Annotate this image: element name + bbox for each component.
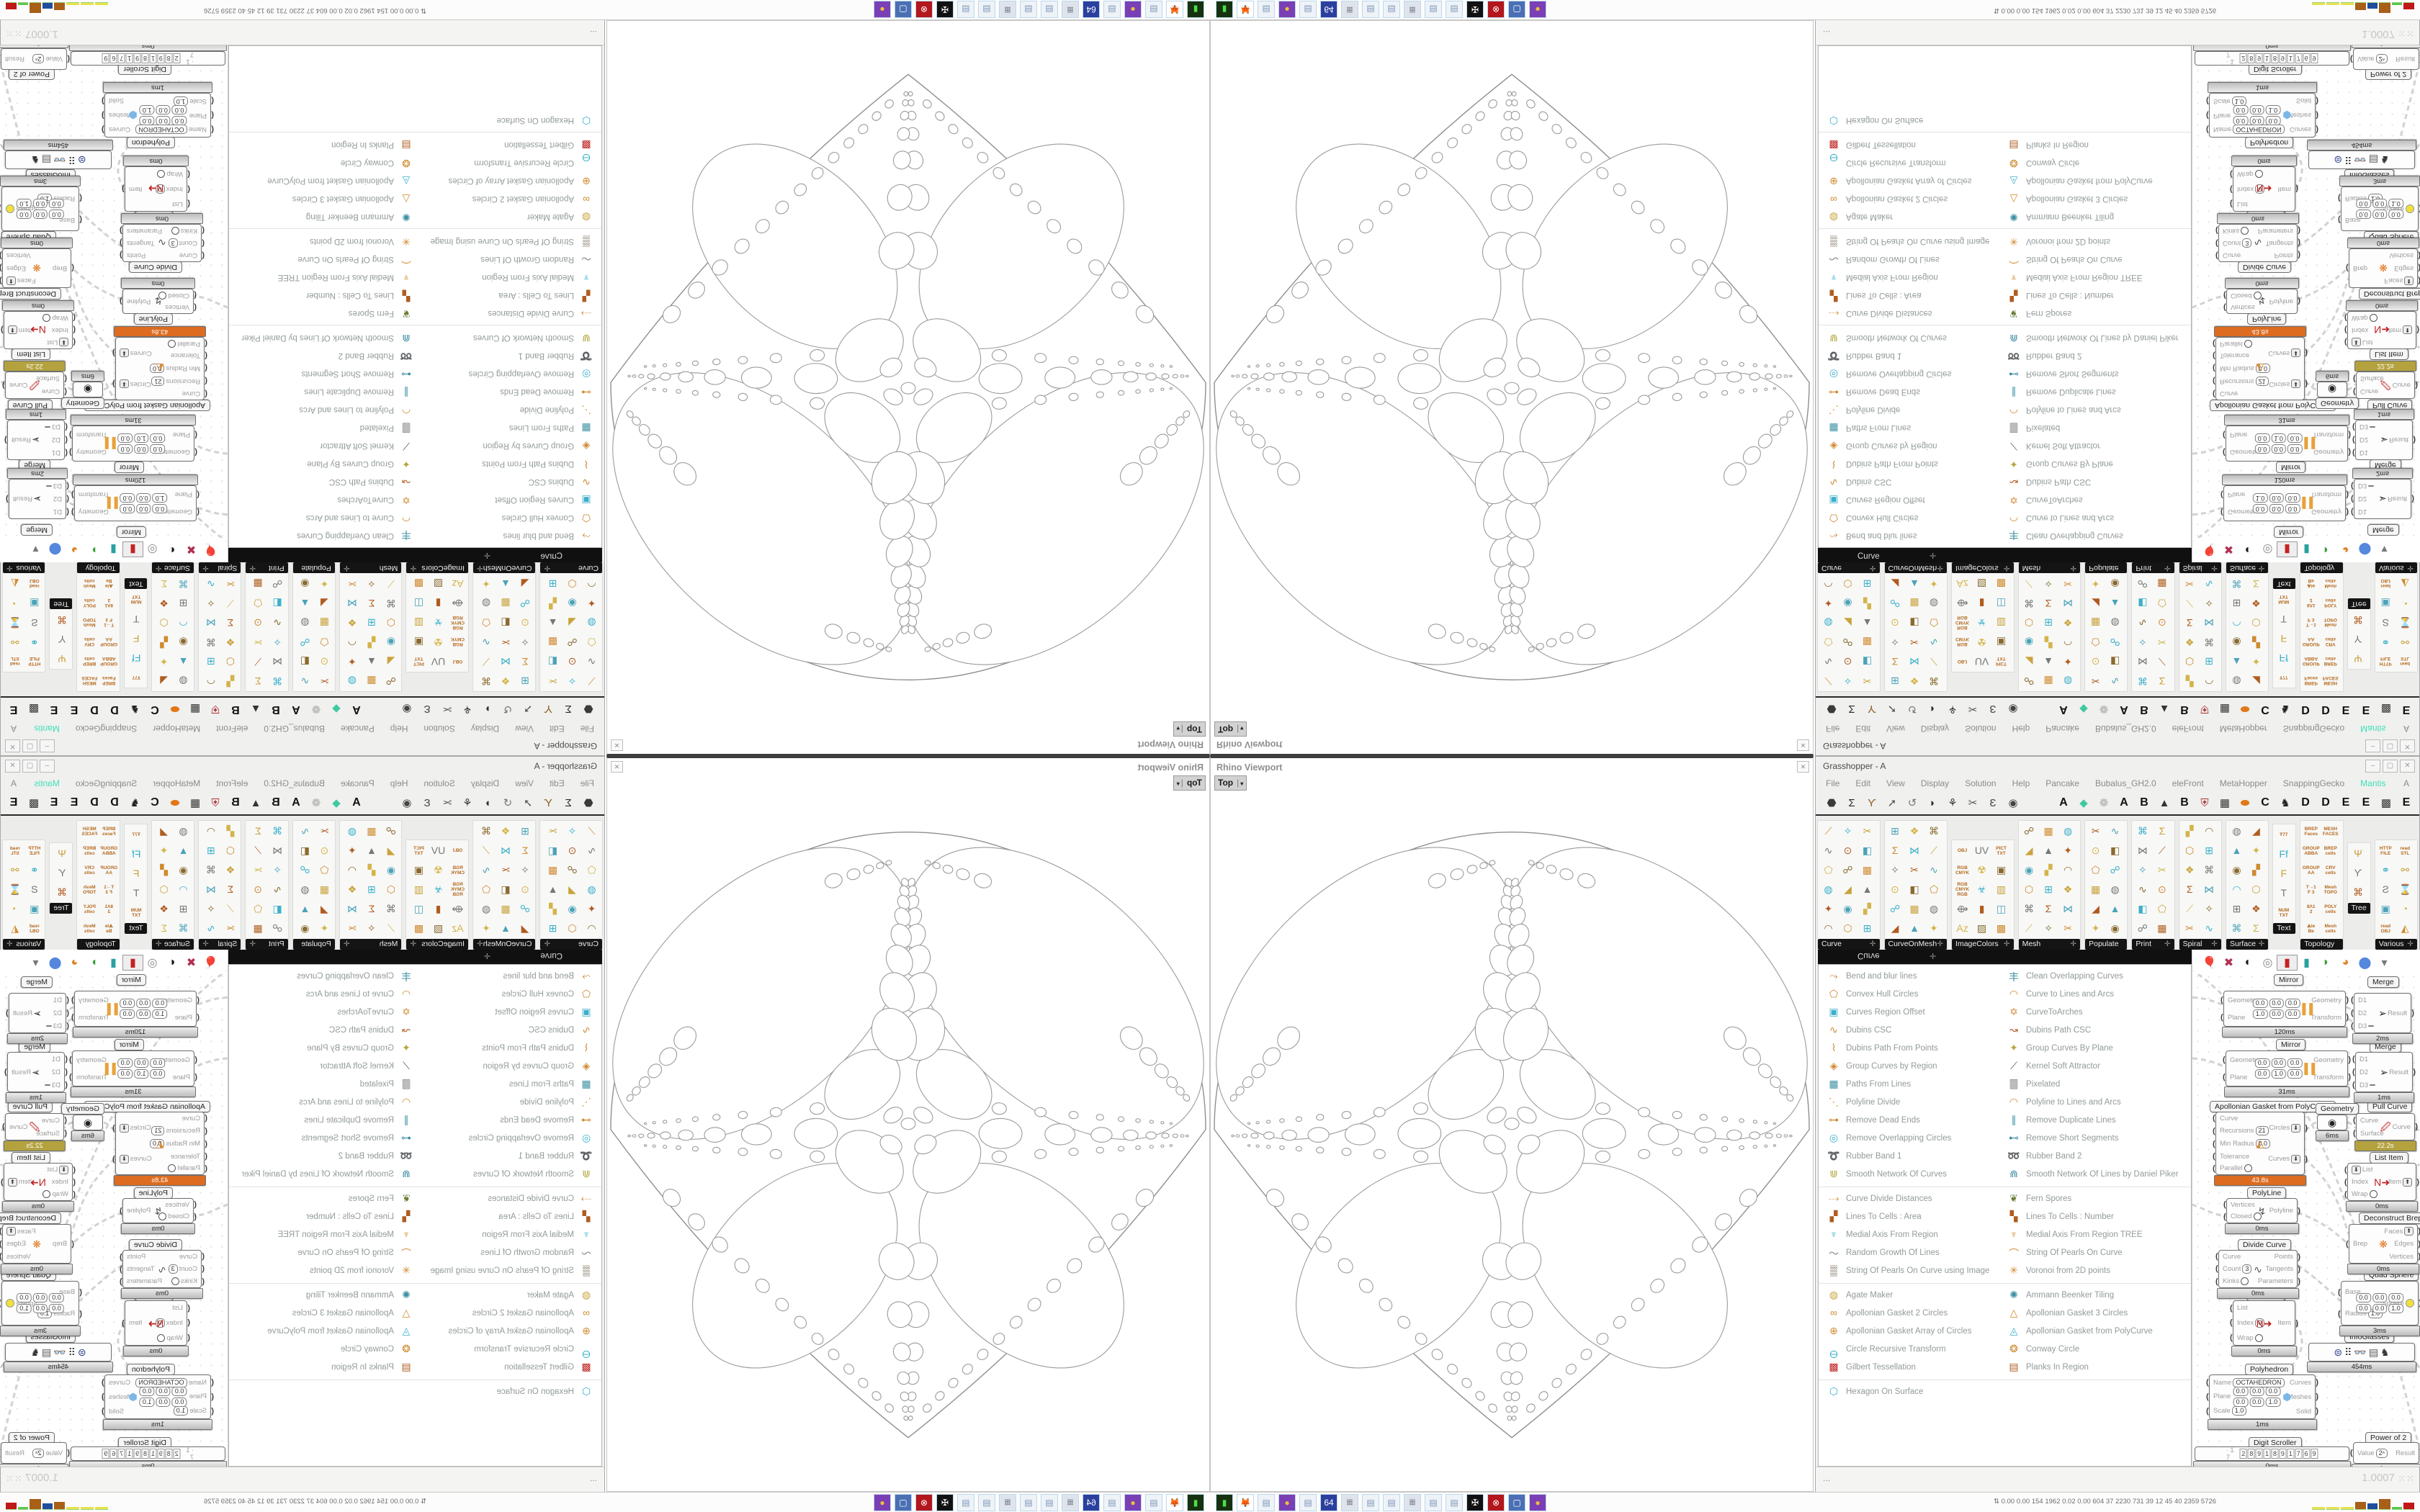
component-polyline[interactable]: (Vertices(Closed)Polyline↯ bbox=[2226, 289, 2298, 314]
toolbar-icon[interactable]: ▦ bbox=[2215, 703, 2235, 716]
port[interactable]: )Result bbox=[12, 1068, 31, 1076]
ribbon-icon[interactable]: ◍ bbox=[582, 880, 601, 899]
ribbon-icon[interactable]: ⟴ bbox=[448, 593, 467, 613]
ribbon-icon[interactable]: ▦ bbox=[362, 822, 381, 841]
ribbon-icon[interactable]: ◠ bbox=[342, 860, 362, 880]
port[interactable]: (Scale1.0 bbox=[2213, 96, 2246, 106]
display-toolbar-icon[interactable]: ◗ bbox=[2316, 956, 2336, 969]
ribbon-icon[interactable]: ✧ bbox=[201, 899, 220, 919]
ribbon-icon[interactable]: ▦ bbox=[2086, 880, 2105, 899]
taskbar-app[interactable]: ▤ bbox=[1362, 1, 1379, 18]
ribbon-icon[interactable]: ⬠ bbox=[2086, 632, 2105, 652]
display-toolbar-icon[interactable]: ⬤ bbox=[2355, 542, 2375, 557]
component-geometry[interactable]: ◉ bbox=[2317, 1115, 2347, 1130]
toolbar-icon[interactable]: D bbox=[84, 796, 104, 809]
port[interactable]: (⬇List bbox=[48, 338, 69, 346]
ribbon-icon[interactable]: ⟋ bbox=[2180, 899, 2200, 919]
ribbon-icon[interactable]: ✦ bbox=[2246, 652, 2266, 671]
ribbon-icon[interactable]: ◠ bbox=[1819, 574, 1838, 593]
toolbar-icon[interactable]: ▩ bbox=[2376, 703, 2396, 716]
ribbon-icon[interactable]: ▣ bbox=[2376, 899, 2396, 919]
ribbon-icon[interactable]: ✦ bbox=[342, 652, 362, 671]
ribbon-icon[interactable]: ▣ bbox=[409, 632, 429, 652]
ribbon-icon[interactable]: ⋈ bbox=[2200, 880, 2219, 899]
port[interactable]: )Circles⬇ bbox=[120, 380, 151, 389]
ribbon-icon[interactable]: ◠ bbox=[201, 822, 220, 841]
ribbon-icon[interactable]: ◢ bbox=[154, 822, 174, 841]
port[interactable]: )Result bbox=[12, 436, 31, 444]
taskbar-app[interactable]: ▮ bbox=[1187, 1494, 1204, 1511]
menu-edit[interactable]: Edit bbox=[550, 778, 565, 788]
grasshopper-canvas[interactable]: 🎈✖◐◎▮▮◗◕⬤▾ MirrorMergeMirrorMergeApollon… bbox=[0, 950, 228, 1467]
display-toolbar-icon[interactable]: ◎ bbox=[2258, 542, 2277, 557]
toolbar-icon[interactable]: Ƴ bbox=[1862, 797, 1882, 809]
port[interactable]: (D1 bbox=[2359, 1056, 2368, 1063]
ribbon-icon[interactable]: ◠ bbox=[582, 919, 601, 938]
menu-solution[interactable]: Solution bbox=[423, 778, 454, 788]
port[interactable]: (Curve bbox=[42, 1117, 60, 1125]
ribbon-icon[interactable]: ⊙ bbox=[315, 841, 334, 860]
ribbon-icon[interactable]: ◍ bbox=[2105, 613, 2125, 632]
ribbon-category-label[interactable]: Populate bbox=[293, 562, 335, 573]
ribbon-icon[interactable]: ▲ bbox=[1857, 880, 1877, 899]
component-digit-scroller[interactable]: · 1 72891891769 bbox=[2195, 1446, 2349, 1461]
toolbar-icon[interactable]: A bbox=[2114, 703, 2134, 716]
ribbon-icon[interactable]: ⬡ bbox=[220, 841, 240, 860]
ribbon-icon[interactable]: ⌘ bbox=[201, 632, 220, 652]
port[interactable]: (Value2ⁿ bbox=[32, 1449, 63, 1458]
port[interactable]: )Points bbox=[127, 1253, 145, 1261]
ribbon-icon[interactable]: ⬠ bbox=[2152, 899, 2172, 919]
port[interactable]: (Count3 bbox=[169, 1264, 197, 1274]
menu-display[interactable]: Display bbox=[1921, 778, 1949, 788]
ribbon-icon[interactable]: ◉ bbox=[2020, 632, 2039, 652]
ribbon-icon[interactable]: ⟁Ie Be bbox=[99, 919, 119, 938]
ribbon-icon[interactable]: 8Λ1 2 bbox=[2301, 899, 2321, 919]
ribbon-icon[interactable]: ∿ bbox=[201, 574, 220, 593]
ribbon-icon[interactable]: OBJ bbox=[1953, 652, 1972, 671]
port[interactable]: (Closed bbox=[2231, 1212, 2262, 1220]
toolbar-icon[interactable]: D bbox=[84, 703, 104, 716]
ribbon-icon[interactable]: ▞ bbox=[362, 860, 381, 880]
component-merge-1[interactable]: (D1(D2(D3 )Result➢ bbox=[2354, 993, 2411, 1033]
port[interactable]: (List bbox=[172, 200, 183, 208]
toolbar-icon[interactable]: Ƴ bbox=[538, 703, 558, 716]
ribbon-icon[interactable]: Σ bbox=[2180, 880, 2200, 899]
ribbon-icon[interactable]: ▲ bbox=[496, 919, 515, 938]
toolbar-icon[interactable]: E bbox=[2356, 703, 2376, 716]
port[interactable]: )Parameters bbox=[127, 227, 162, 235]
display-toolbar-icon[interactable]: ◐ bbox=[2238, 543, 2258, 556]
ribbon-category-label[interactable]: Curve✛ bbox=[1818, 939, 1880, 950]
menu-metahopper[interactable]: MetaHopper bbox=[2220, 778, 2267, 788]
ribbon-icon[interactable]: ⟋ bbox=[1819, 671, 1838, 690]
port[interactable]: (D3 bbox=[2358, 1022, 2374, 1030]
ribbon-icon[interactable]: ⊞ bbox=[515, 671, 534, 690]
ribbon-icon[interactable]: ◢ bbox=[2020, 652, 2039, 671]
port[interactable]: )Edges bbox=[6, 264, 26, 272]
port[interactable]: (Recursions21 bbox=[151, 377, 200, 386]
toolbar-icon[interactable]: ▦ bbox=[2215, 796, 2235, 809]
ribbon-icon[interactable]: ◭ bbox=[2396, 919, 2415, 938]
port[interactable]: (Tolerance bbox=[171, 351, 200, 359]
ribbon-icon[interactable]: ⊞ bbox=[1857, 919, 1877, 938]
ribbon-icon[interactable]: ◠ bbox=[1819, 919, 1838, 938]
port[interactable]: (Plane bbox=[2230, 1074, 2247, 1081]
component-list-item-1[interactable]: (⬇List(Index(Wrap)Item⬆N➜ bbox=[4, 1163, 73, 1201]
toolbar-icon[interactable]: ⚘ bbox=[1942, 796, 1963, 809]
port[interactable]: )Polyline bbox=[2269, 297, 2293, 305]
ribbon-icon[interactable]: OBJ bbox=[448, 841, 467, 860]
ribbon-icon[interactable]: ◉ bbox=[563, 593, 582, 613]
ribbon-icon[interactable]: ▣ bbox=[1991, 860, 2011, 880]
component-quad-sphere[interactable]: (Base(Radius1.0)Sphere0.00.00.00.00.01.0 bbox=[2341, 1281, 2419, 1326]
ribbon-icon[interactable]: Σ bbox=[2246, 574, 2266, 593]
ribbon-icon[interactable]: ◧ bbox=[496, 880, 515, 899]
toolbar-icon[interactable]: E bbox=[2336, 796, 2356, 809]
ribbon-icon[interactable]: ⊞ bbox=[362, 880, 381, 899]
ribbon-category-label[interactable]: Curve✛ bbox=[540, 562, 602, 573]
grasshopper-title-bar[interactable]: Grasshopper - A – ▢ ✕ bbox=[1, 757, 604, 775]
ribbon-icon[interactable]: ▦ bbox=[2152, 574, 2172, 593]
ribbon-icon[interactable]: Ƨ bbox=[2376, 613, 2396, 632]
ribbon-icon[interactable]: ⟋ bbox=[248, 841, 268, 860]
ribbon-icon[interactable]: ✂ bbox=[2058, 574, 2078, 593]
toolbar-icon[interactable]: Ɛ bbox=[1983, 703, 2003, 716]
ribbon-icon[interactable]: ▞ bbox=[1857, 899, 1877, 919]
taskbar-app[interactable]: 🦊 bbox=[1237, 1, 1254, 18]
ribbon-category-label[interactable]: Spiral✛ bbox=[2179, 562, 2221, 573]
ribbon-icon[interactable]: ❖ bbox=[2180, 632, 2200, 652]
toolbar-icon[interactable]: E bbox=[64, 703, 84, 716]
ribbon-icon[interactable]: ⬠ bbox=[582, 632, 601, 652]
ribbon-icon[interactable]: ▲ bbox=[174, 841, 193, 860]
ribbon-icon[interactable]: ✧ bbox=[563, 671, 582, 690]
ribbon-icon[interactable]: ▲ bbox=[295, 593, 315, 613]
menu-help[interactable]: Help bbox=[2012, 778, 2030, 788]
ribbon-icon[interactable]: ◧ bbox=[2133, 593, 2152, 613]
toolbar-icon[interactable]: B bbox=[225, 796, 246, 809]
ribbon-icon[interactable]: ▞ bbox=[2246, 860, 2266, 880]
ribbon-icon[interactable]: ✂ bbox=[248, 860, 268, 880]
component-divide-curve[interactable]: (Curve(Count3(Kinks)Points)Tangents)Para… bbox=[2218, 1250, 2298, 1288]
port[interactable]: )Result bbox=[2396, 1449, 2415, 1457]
toolbar-icon[interactable]: ➚ bbox=[518, 703, 538, 716]
menu-display[interactable]: Display bbox=[1921, 724, 1949, 734]
ribbon-icon[interactable]: ⌘ bbox=[174, 574, 193, 593]
ribbon-icon[interactable]: ⌘ bbox=[2227, 574, 2246, 593]
component-list-item-2[interactable]: (List(Index0(Wrap)ItemN➜ bbox=[2233, 166, 2295, 212]
port[interactable]: (Recursions21 bbox=[2220, 1126, 2269, 1135]
ribbon-icon[interactable]: ⋈ bbox=[342, 593, 362, 613]
ribbon-icon[interactable]: RGB CMYK RGB bbox=[1953, 613, 1972, 632]
port[interactable]: (Brep bbox=[2353, 1240, 2367, 1248]
ribbon-icon[interactable]: ❖ bbox=[2180, 860, 2200, 880]
port[interactable]: )Tangents bbox=[2265, 1265, 2293, 1273]
ribbon-icon[interactable]: ⬠ bbox=[1924, 880, 1944, 899]
ribbon-icon[interactable]: ✦ bbox=[315, 919, 334, 938]
ribbon-icon[interactable]: T bbox=[127, 883, 146, 903]
close-icon[interactable]: ✕ bbox=[1797, 761, 1809, 773]
ribbon-icon[interactable]: ⚯ bbox=[5, 860, 24, 880]
port[interactable]: (Brep bbox=[53, 264, 67, 272]
ribbon-icon[interactable]: ▲ bbox=[1905, 574, 1924, 593]
taskbar-app[interactable]: ● bbox=[1278, 1494, 1296, 1511]
ribbon-icon[interactable]: ▲ bbox=[2105, 593, 2125, 613]
port[interactable]: (Parallel bbox=[2220, 340, 2252, 348]
ribbon-icon[interactable]: ▨ bbox=[429, 919, 448, 938]
ribbon-icon[interactable]: ✂ bbox=[1857, 822, 1877, 841]
taskbar-app[interactable]: ▢ bbox=[895, 1, 912, 18]
ribbon-icon[interactable]: ⊙ bbox=[1838, 652, 1857, 671]
component-geometry[interactable]: ◉ bbox=[2317, 382, 2347, 397]
ribbon-icon[interactable]: ▦ bbox=[2039, 671, 2058, 690]
toolbar-icon[interactable]: ▲ bbox=[246, 797, 266, 809]
ribbon-icon[interactable]: ▥ bbox=[409, 880, 429, 899]
toolbar-icon[interactable]: ↺ bbox=[1902, 796, 1922, 809]
taskbar-app[interactable]: ✠ bbox=[1466, 1, 1484, 18]
ribbon-icon[interactable]: ∿ bbox=[268, 613, 287, 632]
port[interactable]: )Curve bbox=[2393, 382, 2411, 390]
ribbon-icon[interactable]: ☍ bbox=[1886, 593, 1905, 613]
ribbon-icon[interactable]: ◉ bbox=[2105, 919, 2125, 938]
component-digit-scroller[interactable]: · 1 72891891769 bbox=[71, 51, 225, 66]
ribbon-icon[interactable]: ∿ bbox=[2105, 822, 2125, 841]
ribbon-icon[interactable]: ▣ bbox=[1991, 632, 2011, 652]
ribbon-icon[interactable]: Ƴ bbox=[2349, 629, 2368, 649]
ribbon-icon[interactable]: ⟴ bbox=[1953, 593, 1972, 613]
ribbon-icon[interactable]: ⬡ bbox=[381, 613, 400, 632]
port[interactable]: )Curves⬇ bbox=[120, 349, 152, 358]
ribbon-icon[interactable]: ⬡ bbox=[1838, 919, 1857, 938]
ribbon-icon[interactable]: ⌛ bbox=[5, 880, 24, 899]
ribbon-icon[interactable]: ▲ bbox=[2039, 841, 2058, 860]
toolbar-icon[interactable]: Ɛ bbox=[1983, 797, 2003, 809]
port[interactable]: )Result bbox=[5, 55, 24, 63]
ribbon-icon[interactable]: ⊞ bbox=[1886, 822, 1905, 841]
close-icon[interactable]: ✕ bbox=[611, 761, 623, 773]
menu-mantis[interactable]: Mantis bbox=[2360, 778, 2385, 788]
ribbon-icon[interactable]: ⟋ bbox=[381, 574, 400, 593]
taskbar-app[interactable]: 𝄜 bbox=[1062, 1, 1079, 18]
grasshopper-canvas[interactable]: 🎈✖◐◎▮▮◗◕⬤▾ MirrorMergeMirrorMergeApollon… bbox=[2192, 45, 2420, 562]
ribbon-category-label[interactable]: CurveOnMesh✛ bbox=[1885, 939, 1948, 950]
ribbon-icon[interactable]: ∿ bbox=[2200, 574, 2219, 593]
ribbon-icon[interactable]: ⬡ bbox=[563, 919, 582, 938]
menu-file[interactable]: File bbox=[581, 724, 594, 734]
ribbon-icon[interactable]: ∿ bbox=[201, 919, 220, 938]
toolbar-icon[interactable]: ❁ bbox=[306, 703, 326, 716]
taskbar-app[interactable]: 🦊 bbox=[1166, 1494, 1183, 1511]
ribbon-icon[interactable]: ⚭ bbox=[2376, 632, 2396, 652]
menu-solution[interactable]: Solution bbox=[423, 724, 454, 734]
component-mirror-2[interactable]: (Geometry(Plane)Geometry)Transform0.00.0… bbox=[2226, 426, 2348, 462]
display-toolbar-icon[interactable]: ▾ bbox=[2375, 542, 2394, 557]
component-power-of-2[interactable]: (Value2ⁿ)Result bbox=[1, 48, 67, 70]
ribbon-icon[interactable]: ✂ bbox=[543, 822, 563, 841]
port[interactable]: (Kinks bbox=[171, 1277, 197, 1285]
ribbon-category-label[interactable]: Tree bbox=[2348, 598, 2370, 609]
ribbon-icon[interactable]: ◢ bbox=[515, 574, 534, 593]
ribbon-icon[interactable]: ✂ bbox=[496, 632, 515, 652]
ribbon-icon[interactable]: F bbox=[2274, 864, 2293, 883]
ribbon-icon[interactable]: ☍ bbox=[1838, 860, 1857, 880]
menu-elefront[interactable]: eleFront bbox=[216, 778, 248, 788]
ribbon-icon[interactable]: ❖ bbox=[2058, 880, 2078, 899]
ribbon-icon[interactable]: ☢ bbox=[1972, 632, 1991, 652]
minimize-button[interactable]: – bbox=[2365, 739, 2380, 752]
port[interactable]: )Faces⬆ bbox=[6, 276, 36, 285]
ribbon-icon[interactable]: ▞ bbox=[543, 593, 563, 613]
ribbon-icon[interactable]: ⚯ bbox=[2396, 632, 2415, 652]
port[interactable]: )Curve bbox=[2393, 1123, 2411, 1131]
ribbon-icon[interactable]: ✂ bbox=[2086, 671, 2105, 690]
port[interactable]: )Circles⬇ bbox=[120, 1124, 151, 1133]
menu-help[interactable]: Help bbox=[390, 724, 408, 734]
ribbon-icon[interactable]: ⋈ bbox=[268, 652, 287, 671]
menu-edit[interactable]: Edit bbox=[1855, 778, 1870, 788]
menu-elefront[interactable]: eleFront bbox=[2172, 724, 2204, 734]
port[interactable]: (Tolerance bbox=[2220, 1153, 2249, 1161]
taskbar-app[interactable]: ● bbox=[1124, 1, 1142, 18]
port[interactable]: )Polyline bbox=[127, 1207, 151, 1215]
ribbon-icon[interactable]: ◢ bbox=[563, 880, 582, 899]
taskbar-app[interactable]: ▤ bbox=[1020, 1494, 1037, 1511]
menu-snappinggecko[interactable]: SnappingGecko bbox=[2283, 778, 2344, 788]
ribbon-icon[interactable]: read STL bbox=[5, 841, 24, 860]
ribbon-icon[interactable]: Ƴ bbox=[2349, 863, 2368, 883]
ribbon-icon[interactable]: ⋈ bbox=[2200, 613, 2219, 632]
ribbon-icon[interactable]: ◢ bbox=[1838, 880, 1857, 899]
ribbon-category-label[interactable]: Surface✛ bbox=[2226, 939, 2268, 950]
ribbon-icon[interactable]: T→1 F 3 bbox=[99, 613, 119, 632]
toolbar-icon[interactable]: ↺ bbox=[498, 796, 518, 809]
component-divide-curve[interactable]: (Curve(Count3(Kinks)Points)Tangents)Para… bbox=[122, 224, 202, 262]
ribbon-icon[interactable]: ⌘ bbox=[268, 822, 287, 841]
ribbon-icon[interactable]: ⟁Ie Be bbox=[99, 574, 119, 593]
menu-pancake[interactable]: Pancake bbox=[2045, 724, 2079, 734]
port[interactable]: (Wrap bbox=[42, 314, 68, 322]
port[interactable]: )Item bbox=[129, 185, 142, 193]
ribbon-category-label[interactable]: Tree bbox=[50, 903, 72, 914]
ribbon-icon[interactable]: ⬡ bbox=[1838, 574, 1857, 593]
menu-bubalus_gh2.0[interactable]: Bubalus_GH2.0 bbox=[264, 724, 325, 734]
taskbar-app[interactable]: ● bbox=[1278, 1, 1296, 18]
ribbon-icon[interactable]: ◢ bbox=[1838, 613, 1857, 632]
port[interactable]: (List bbox=[2237, 200, 2248, 208]
toolbar-icon[interactable]: Ƴ bbox=[1862, 703, 1882, 716]
ribbon-icon[interactable]: ▞ bbox=[2180, 822, 2200, 841]
port[interactable]: (Plane bbox=[175, 491, 192, 499]
port[interactable]: (Vertices bbox=[2231, 303, 2255, 311]
ribbon-icon[interactable]: ⌘ bbox=[1924, 671, 1944, 690]
ribbon-icon[interactable]: ⬡ bbox=[2246, 613, 2266, 632]
ribbon-icon[interactable]: ☍ bbox=[268, 919, 287, 938]
port[interactable]: (D2 bbox=[2359, 436, 2368, 444]
viewport-view-dropdown[interactable]: Top|▾ bbox=[1173, 775, 1206, 791]
viewport-view-dropdown[interactable]: Top|▾ bbox=[1214, 721, 1247, 737]
port[interactable]: )Result bbox=[2389, 436, 2408, 444]
port[interactable]: )Item⬆ bbox=[2388, 326, 2412, 335]
ribbon-icon[interactable]: Σ bbox=[2246, 919, 2266, 938]
menu-mantis[interactable]: Mantis bbox=[2360, 724, 2385, 734]
component-mirror-2[interactable]: (Geometry(Plane)Geometry)Transform0.00.0… bbox=[72, 1050, 194, 1086]
taskbar-app[interactable]: ▤ bbox=[1258, 1494, 1275, 1511]
ribbon-icon[interactable]: ⌘ bbox=[2200, 860, 2219, 880]
ribbon-icon[interactable]: Σ bbox=[2039, 899, 2058, 919]
ribbon-icon[interactable]: ∿ bbox=[268, 880, 287, 899]
toolbar-icon[interactable]: ▦ bbox=[185, 703, 205, 716]
component-digit-scroller[interactable]: · 1 72891891769 bbox=[2195, 51, 2349, 66]
ribbon-icon[interactable]: Σ bbox=[2039, 593, 2058, 613]
ribbon-icon[interactable]: ◉ bbox=[381, 860, 400, 880]
port[interactable]: (Plane bbox=[189, 112, 207, 120]
open-category-header[interactable]: Curve ✛ bbox=[228, 950, 602, 964]
ribbon-icon[interactable]: ⌛ bbox=[2396, 880, 2415, 899]
ribbon-icon[interactable]: ⌛ bbox=[5, 613, 24, 632]
ribbon-icon[interactable]: T→1 F 3 bbox=[2301, 880, 2321, 899]
component-deconstruct-brep[interactable]: (Brep)Faces⬆)Edges)Vertices❋ bbox=[2349, 1224, 2418, 1264]
ribbon-icon[interactable]: ✂ bbox=[2058, 919, 2078, 938]
port[interactable]: (Value2ⁿ bbox=[32, 55, 63, 64]
ribbon-category-label[interactable]: Print✛ bbox=[2132, 562, 2174, 573]
display-toolbar-icon[interactable]: 🎈 bbox=[201, 542, 220, 557]
ribbon-icon[interactable]: ☍ bbox=[2020, 822, 2039, 841]
ribbon-icon[interactable]: Ƨ bbox=[24, 613, 44, 632]
ribbon-icon[interactable]: ▦ bbox=[2039, 822, 2058, 841]
ribbon-icon[interactable]: ⊞ bbox=[2200, 652, 2219, 671]
port[interactable]: )Result bbox=[2388, 495, 2407, 503]
port[interactable]: (D3 bbox=[46, 1022, 62, 1030]
toolbar-icon[interactable]: ❁ bbox=[2094, 796, 2114, 809]
display-toolbar-icon[interactable]: 🎈 bbox=[2200, 542, 2219, 557]
ribbon-icon[interactable]: ✂ bbox=[248, 632, 268, 652]
menu-pancake[interactable]: Pancake bbox=[341, 724, 375, 734]
toolbar-icon[interactable]: ✂ bbox=[1963, 796, 1983, 809]
ribbon-icon[interactable]: ✦ bbox=[2058, 841, 2078, 860]
port[interactable]: (Plane bbox=[2228, 491, 2245, 499]
ribbon-icon[interactable]: ▞ bbox=[362, 632, 381, 652]
taskbar-app[interactable]: ● bbox=[1124, 1494, 1142, 1511]
ribbon-icon[interactable]: ⊙ bbox=[563, 652, 582, 671]
display-toolbar-icon[interactable]: ◗ bbox=[84, 956, 104, 969]
component-polyhedron[interactable]: (NameOCTAHEDRON(Plane(Scale1.0)Curves)Me… bbox=[104, 1374, 211, 1419]
ribbon-icon[interactable]: ⬡ bbox=[154, 880, 174, 899]
menu-metahopper[interactable]: MetaHopper bbox=[2220, 724, 2267, 734]
taskbar-app[interactable]: 🦊 bbox=[1237, 1494, 1254, 1511]
toolbar-icon[interactable]: B bbox=[2174, 703, 2195, 716]
component-merge-2[interactable]: (D1(D2(D3 )Result➢ bbox=[7, 420, 65, 460]
port[interactable]: (D2 bbox=[53, 1009, 62, 1017]
ribbon-icon[interactable]: ∿ bbox=[1924, 860, 1944, 880]
port[interactable]: )Item⬆ bbox=[2388, 1178, 2412, 1187]
ribbon-icon[interactable]: ✂ bbox=[2152, 860, 2172, 880]
ribbon-icon[interactable]: ☍ bbox=[563, 860, 582, 880]
ribbon-icon[interactable]: ◠ bbox=[174, 880, 193, 899]
port[interactable]: (Plane bbox=[2213, 112, 2231, 120]
taskbar-app[interactable]: ▤ bbox=[1258, 1, 1275, 18]
ribbon-icon[interactable]: ◉ bbox=[2227, 632, 2246, 652]
ribbon-category-label[interactable]: Surface✛ bbox=[152, 562, 194, 573]
ribbon-icon[interactable]: ⬡ bbox=[154, 613, 174, 632]
ribbon-icon[interactable]: ✧ bbox=[268, 632, 287, 652]
ribbon-icon[interactable]: ❖ bbox=[342, 613, 362, 632]
taskbar-app[interactable]: ▤ bbox=[1041, 1, 1058, 18]
ribbon-icon[interactable]: ⬡ bbox=[381, 880, 400, 899]
ribbon-icon[interactable]: ❖ bbox=[220, 632, 240, 652]
display-toolbar-icon[interactable]: ✖ bbox=[2219, 955, 2238, 970]
menu-bubalus_gh2.0[interactable]: Bubalus_GH2.0 bbox=[2095, 724, 2156, 734]
